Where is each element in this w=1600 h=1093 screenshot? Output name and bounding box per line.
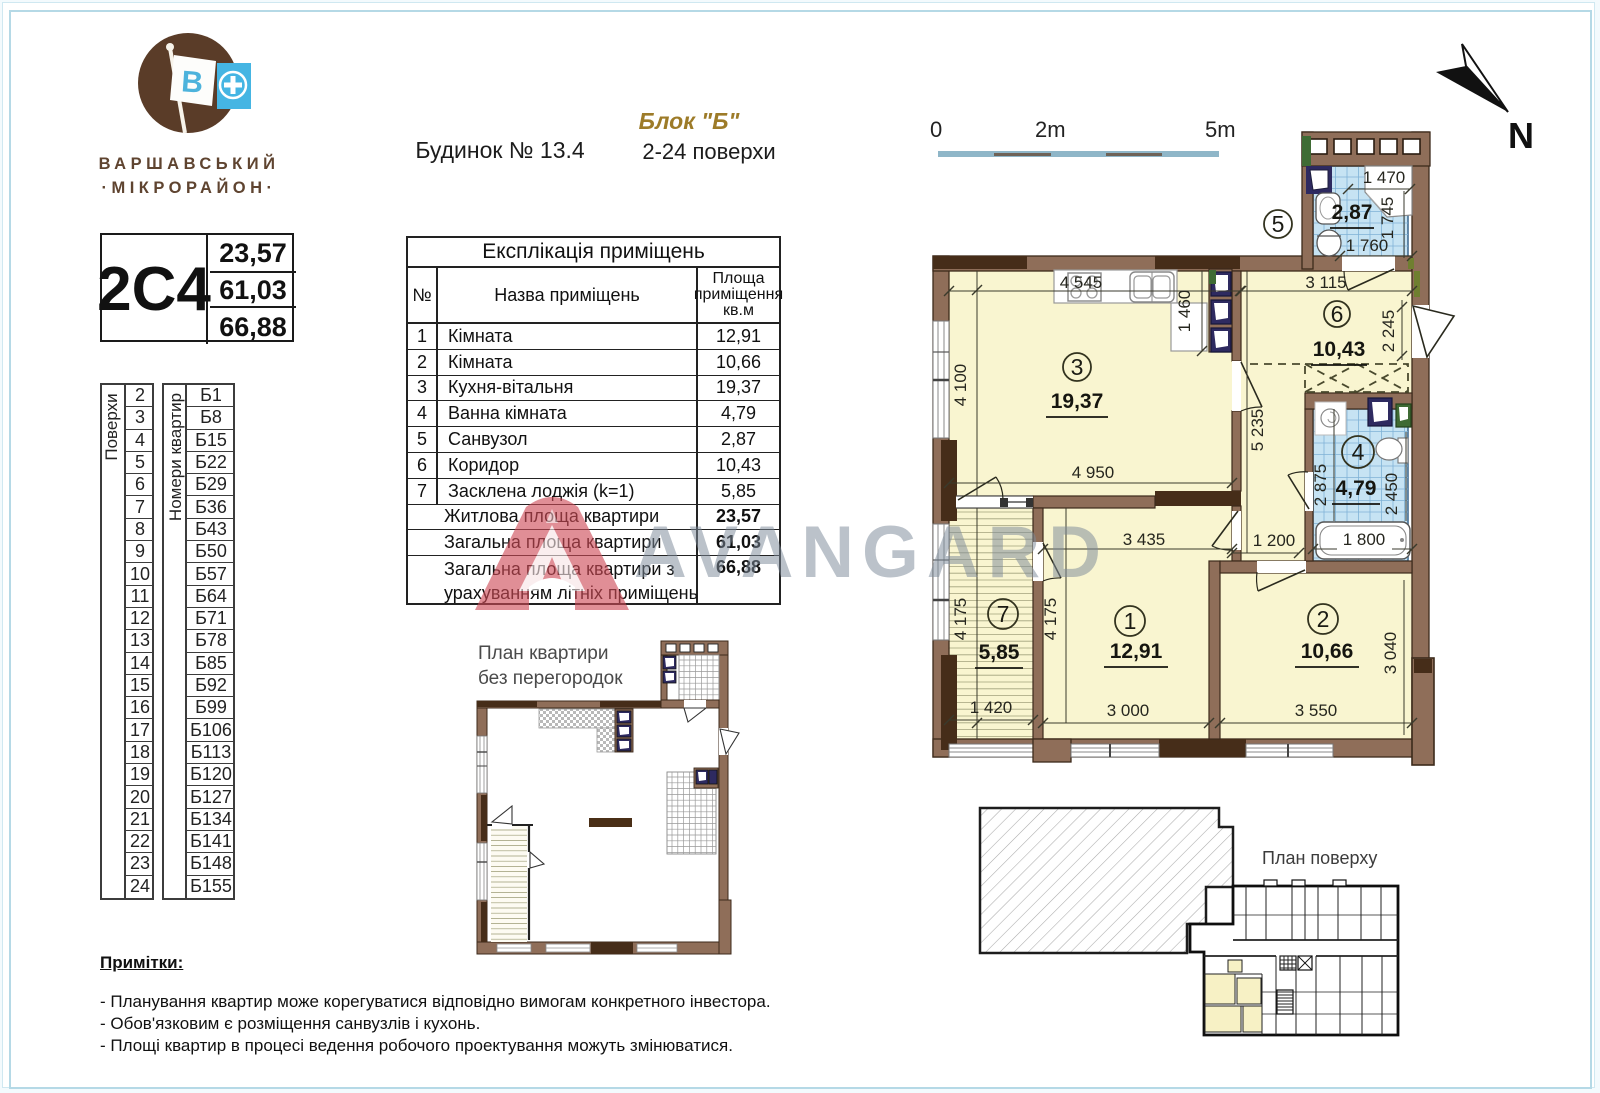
svg-text:6: 6 [1331, 301, 1344, 327]
svg-text:12,91: 12,91 [1110, 640, 1163, 663]
svg-text:В: В [180, 65, 204, 99]
svg-text:2 875: 2 875 [1311, 464, 1330, 507]
svg-text:4 175: 4 175 [1041, 598, 1060, 641]
svg-text:3 550: 3 550 [1295, 701, 1338, 720]
svg-text:1 800: 1 800 [1343, 530, 1386, 549]
svg-text:2 450: 2 450 [1382, 473, 1401, 516]
svg-text:1 760: 1 760 [1346, 236, 1389, 255]
svg-text:4,79: 4,79 [1336, 477, 1377, 500]
svg-text:5,85: 5,85 [979, 641, 1020, 664]
svg-text:10,66: 10,66 [1301, 640, 1354, 663]
svg-text:1 745: 1 745 [1378, 197, 1397, 240]
svg-text:4: 4 [1352, 439, 1365, 465]
svg-text:4 100: 4 100 [951, 364, 970, 407]
svg-text:10,43: 10,43 [1313, 338, 1366, 361]
svg-text:3 115: 3 115 [1305, 273, 1346, 292]
svg-text:7: 7 [997, 601, 1010, 627]
svg-text:1 460: 1 460 [1175, 290, 1194, 333]
svg-text:2: 2 [1317, 606, 1330, 632]
svg-text:3: 3 [1071, 354, 1084, 380]
svg-text:4 950: 4 950 [1072, 463, 1115, 482]
svg-text:1 470: 1 470 [1363, 168, 1406, 187]
svg-text:1 200: 1 200 [1253, 531, 1296, 550]
svg-text:N: N [1508, 115, 1534, 156]
svg-text:19,37: 19,37 [1051, 390, 1104, 413]
svg-text:2 245: 2 245 [1379, 310, 1398, 353]
svg-text:1: 1 [1124, 608, 1137, 634]
svg-text:5: 5 [1272, 211, 1285, 237]
svg-text:1 420: 1 420 [970, 698, 1013, 717]
svg-text:4 545: 4 545 [1060, 273, 1103, 292]
svg-text:3 040: 3 040 [1381, 632, 1400, 675]
svg-text:3 435: 3 435 [1123, 530, 1166, 549]
svg-text:2,87: 2,87 [1332, 201, 1373, 224]
svg-text:3 000: 3 000 [1107, 701, 1150, 720]
svg-text:5 235: 5 235 [1248, 409, 1267, 452]
svg-text:4 175: 4 175 [951, 598, 970, 641]
